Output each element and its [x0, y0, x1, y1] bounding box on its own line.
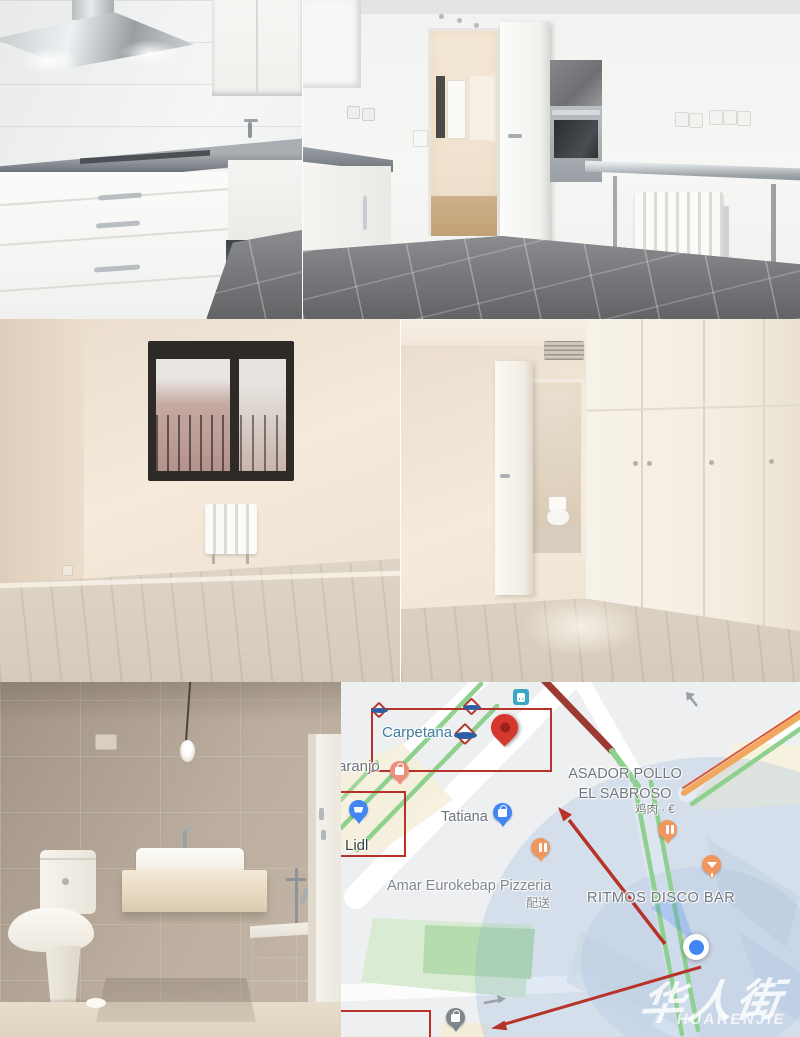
shopping-bag-icon	[498, 809, 507, 817]
bus-stop-icon	[513, 689, 529, 705]
label-asador-sub: 鸡肉 · €	[635, 801, 675, 817]
fork-knife-icon	[666, 825, 669, 834]
wardrobe-knob	[709, 460, 714, 465]
cabinet-handle	[363, 196, 367, 230]
pendant-bulb	[180, 740, 195, 762]
door-lock	[321, 830, 326, 840]
restaurant-pin-icon	[531, 838, 550, 857]
floor-object	[86, 998, 106, 1008]
oven-window	[554, 120, 598, 158]
open-door	[500, 22, 550, 244]
bathroom-door	[316, 734, 341, 1037]
naranjo-shop-pin-icon	[390, 761, 409, 780]
wardrobe-knob	[633, 461, 638, 466]
label-naranjo: aranjo	[341, 758, 380, 775]
hood-light-glare	[120, 40, 180, 66]
restaurant-pin-icon	[658, 820, 677, 839]
faucet-spout	[244, 119, 258, 122]
door-frame	[428, 28, 500, 236]
label-ritmos-disco: RITMOS DISCO BAR	[587, 890, 735, 906]
label-amar-badge: 配送	[526, 894, 550, 911]
photo-bedroom	[0, 319, 400, 682]
toilet-bowl	[8, 908, 94, 952]
tatiana-pin-icon	[493, 803, 512, 822]
wardrobe-knob	[769, 459, 774, 464]
cart-icon	[354, 807, 364, 813]
faucet	[183, 830, 187, 848]
floor-shadow-area	[96, 978, 256, 1022]
radiator	[205, 504, 257, 554]
open-door	[495, 361, 533, 595]
cocktail-pin-icon	[702, 855, 721, 874]
faucet-spout	[180, 828, 192, 831]
vanity-cabinet	[122, 870, 267, 912]
wall-socket	[709, 110, 723, 125]
label-lidl: Lidl	[345, 837, 368, 854]
wardrobe-seam	[703, 319, 705, 637]
wall-socket	[95, 734, 117, 750]
upper-cabinet-sliver	[303, 0, 361, 88]
dark-panel	[550, 60, 602, 106]
fork-knife-icon	[539, 843, 542, 852]
door-frame-strip	[308, 734, 316, 1037]
shopping-bag-icon	[451, 1014, 460, 1022]
label-asador-pollo: ASADOR POLLO EL SABROSO	[565, 764, 685, 804]
door-handle	[508, 134, 522, 138]
wall-socket	[362, 108, 375, 121]
collage-canvas: Carpetana aranjo Lidl Tatiana Amar Eurok…	[0, 0, 800, 1037]
watermark-en: HUARENJIE	[676, 1011, 788, 1028]
wall-socket	[737, 111, 751, 126]
balcony-railing	[240, 415, 286, 471]
wardrobe-seam	[763, 319, 765, 639]
photo-bathroom	[0, 682, 341, 1037]
radiator-leg	[246, 554, 249, 564]
label-carpetana: Carpetana	[382, 724, 452, 741]
light-pool	[521, 597, 641, 657]
metro-icon	[465, 700, 478, 713]
wall-socket	[347, 106, 360, 119]
built-in-wardrobe	[586, 319, 800, 641]
current-location-dot	[683, 934, 709, 960]
ceiling-spotlight	[439, 14, 444, 19]
cabinet-seam	[256, 0, 258, 92]
light-switch	[413, 130, 428, 147]
radiator-leg	[212, 554, 215, 564]
metro-icon	[373, 704, 385, 716]
wall-socket	[675, 112, 689, 127]
photo-wardrobe-room	[401, 319, 800, 682]
shower-bar	[286, 878, 306, 881]
ceiling-spotlight	[457, 18, 462, 23]
flush-button	[62, 878, 69, 885]
ceiling-vent	[544, 341, 584, 360]
oven-handle	[552, 110, 600, 115]
cocktail-icon	[707, 862, 717, 868]
balcony-railing	[156, 415, 232, 471]
door-handle	[319, 808, 324, 820]
steel-table	[585, 154, 800, 184]
shopping-bag-icon	[395, 767, 404, 775]
annotation-box-bottom	[341, 1010, 431, 1037]
toilet-lid-line	[40, 858, 96, 860]
metro-icon	[457, 726, 473, 742]
toilet-base	[42, 946, 84, 1002]
wall-shadow-top	[0, 682, 341, 722]
wall-socket	[723, 110, 737, 125]
label-amar-eurokebap: Amar Eurokebap Pizzeria	[387, 878, 551, 894]
door-frame	[527, 379, 585, 555]
radiator-valve	[723, 206, 729, 262]
base-cabinet-right	[228, 160, 302, 244]
photo-kitchen-hallway	[303, 0, 800, 319]
shop-pin-icon	[446, 1008, 465, 1027]
label-tatiana: Tatiana	[441, 809, 488, 825]
wardrobe-seam	[641, 319, 643, 635]
map-panel: Carpetana aranjo Lidl Tatiana Amar Eurok…	[341, 682, 800, 1037]
door-handle	[500, 474, 510, 478]
photo-kitchen-hood	[0, 0, 302, 319]
wall-socket	[689, 113, 703, 128]
wall-socket	[62, 565, 73, 576]
lidl-pin-icon	[349, 800, 368, 819]
hood-light-glare	[20, 48, 80, 74]
window-mullion	[230, 355, 239, 477]
wardrobe-knob	[647, 461, 652, 466]
faucet	[248, 122, 252, 138]
